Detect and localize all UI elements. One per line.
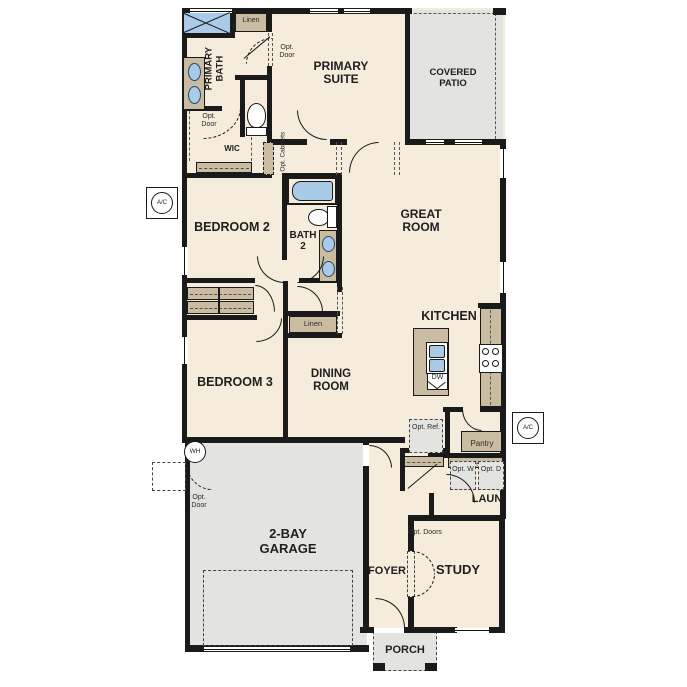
dashed-line bbox=[342, 287, 343, 334]
patio-dashed-edge bbox=[409, 13, 495, 14]
room-label-great-room: GREAT ROOM bbox=[392, 208, 450, 235]
dashed-line bbox=[336, 142, 337, 175]
dashed-line bbox=[341, 142, 342, 175]
hall-cabinet bbox=[404, 456, 444, 467]
wall bbox=[267, 66, 272, 145]
wall bbox=[408, 515, 503, 521]
room-label-dining-room: DINING ROOM bbox=[303, 368, 359, 394]
dashed-line bbox=[394, 142, 395, 175]
opt-ref-label: Opt. Ref. bbox=[412, 424, 440, 432]
water-heater-label: WH bbox=[190, 448, 201, 455]
toilet-bowl bbox=[308, 209, 329, 226]
wall bbox=[337, 173, 342, 292]
pantry-label: Pantry bbox=[462, 439, 502, 448]
wall bbox=[182, 315, 257, 320]
sink bbox=[322, 236, 335, 252]
window bbox=[500, 149, 506, 178]
sink bbox=[188, 63, 201, 81]
window bbox=[181, 337, 188, 364]
closet-shelf bbox=[187, 287, 254, 300]
dishwasher-label: DW bbox=[429, 374, 446, 382]
wall bbox=[330, 139, 347, 145]
porch-corner bbox=[373, 663, 385, 671]
toilet-bowl bbox=[247, 103, 266, 128]
wall bbox=[284, 333, 342, 338]
wall bbox=[183, 33, 235, 38]
sink bbox=[322, 261, 335, 277]
ac-label: A/C bbox=[157, 200, 167, 207]
linen-label: Linen bbox=[291, 320, 335, 329]
room-label-primary-suite: PRIMARY SUITE bbox=[308, 60, 374, 87]
linen-label: Linen bbox=[236, 17, 266, 25]
ac-circle: A/C bbox=[151, 192, 173, 214]
ac-label: A/C bbox=[523, 425, 533, 432]
dashed-line bbox=[189, 111, 190, 161]
window bbox=[344, 9, 370, 13]
wall bbox=[499, 515, 505, 633]
room-label-bath-2: BATH 2 bbox=[287, 230, 319, 252]
wall bbox=[429, 493, 434, 519]
bathtub bbox=[292, 181, 333, 201]
porch-corner bbox=[425, 663, 437, 671]
window bbox=[500, 262, 506, 293]
garage-door-opening bbox=[204, 647, 350, 651]
wic-shelf bbox=[196, 162, 252, 173]
room-label-covered-patio: COVERED PATIO bbox=[426, 68, 480, 89]
island-sink-bowl bbox=[429, 359, 445, 372]
window bbox=[455, 140, 482, 144]
opt-door-label: Opt. Door bbox=[186, 494, 212, 510]
front-door-opening bbox=[374, 628, 404, 633]
room-label-study: STUDY bbox=[429, 563, 487, 578]
room-label-laundry: LAUN bbox=[466, 493, 508, 505]
room-label-wic: WIC bbox=[216, 145, 248, 154]
burner bbox=[492, 348, 499, 355]
opt-door-label: Opt. Door bbox=[274, 44, 300, 60]
opt-cabinets-label: Opt. Cabinets bbox=[279, 132, 286, 172]
wall bbox=[182, 278, 255, 283]
wall bbox=[283, 281, 288, 438]
wall bbox=[405, 8, 410, 145]
burner bbox=[482, 348, 489, 355]
window bbox=[181, 247, 188, 275]
closet-divider bbox=[218, 287, 220, 314]
opt-door-outline bbox=[152, 462, 186, 491]
dashed-line bbox=[399, 142, 400, 175]
room-label-garage: 2-BAY GARAGE bbox=[247, 527, 329, 556]
wall bbox=[267, 12, 272, 32]
window bbox=[455, 628, 489, 632]
opt-cabinets-strip bbox=[263, 142, 274, 175]
toilet-tank bbox=[327, 206, 337, 228]
toilet-tank bbox=[246, 127, 267, 136]
wall bbox=[182, 437, 405, 443]
room-label-foyer: FOYER bbox=[363, 565, 411, 577]
closet-shelf bbox=[187, 301, 254, 314]
room-label-bedroom-2: BEDROOM 2 bbox=[188, 220, 276, 234]
room-label-bedroom-3: BEDROOM 3 bbox=[192, 375, 278, 389]
opt-dryer-label: Opt. D bbox=[480, 466, 502, 474]
sink bbox=[188, 86, 201, 104]
patio-dashed-edge bbox=[495, 13, 496, 139]
water-heater: WH bbox=[184, 441, 206, 463]
opt-door-label: Opt. Door bbox=[196, 113, 222, 129]
room-label-primary-bath: PRIMARY BATH bbox=[204, 45, 225, 93]
ac-circle: A/C bbox=[517, 417, 539, 439]
room-label-porch: PORCH bbox=[381, 644, 429, 656]
opt-washer-label: Opt. W bbox=[452, 466, 474, 474]
wall bbox=[363, 443, 369, 633]
wall bbox=[182, 173, 272, 178]
window bbox=[426, 140, 444, 144]
burner bbox=[492, 360, 499, 367]
garage-apron-outline bbox=[203, 570, 353, 646]
wall bbox=[240, 75, 245, 137]
wall bbox=[493, 8, 506, 15]
wall bbox=[445, 412, 450, 453]
window bbox=[310, 9, 338, 13]
dashed-line bbox=[272, 33, 273, 66]
floor-plan: DW Opt. Ref. Opt. W Opt. D WH A/C A/C PR… bbox=[0, 0, 687, 687]
island-sink-bowl bbox=[429, 345, 445, 358]
dashed-line bbox=[337, 287, 338, 334]
opt-doors-label: Opt. Doors bbox=[407, 529, 443, 537]
wall bbox=[408, 597, 414, 629]
room-label-kitchen: KITCHEN bbox=[420, 309, 478, 323]
burner bbox=[482, 360, 489, 367]
